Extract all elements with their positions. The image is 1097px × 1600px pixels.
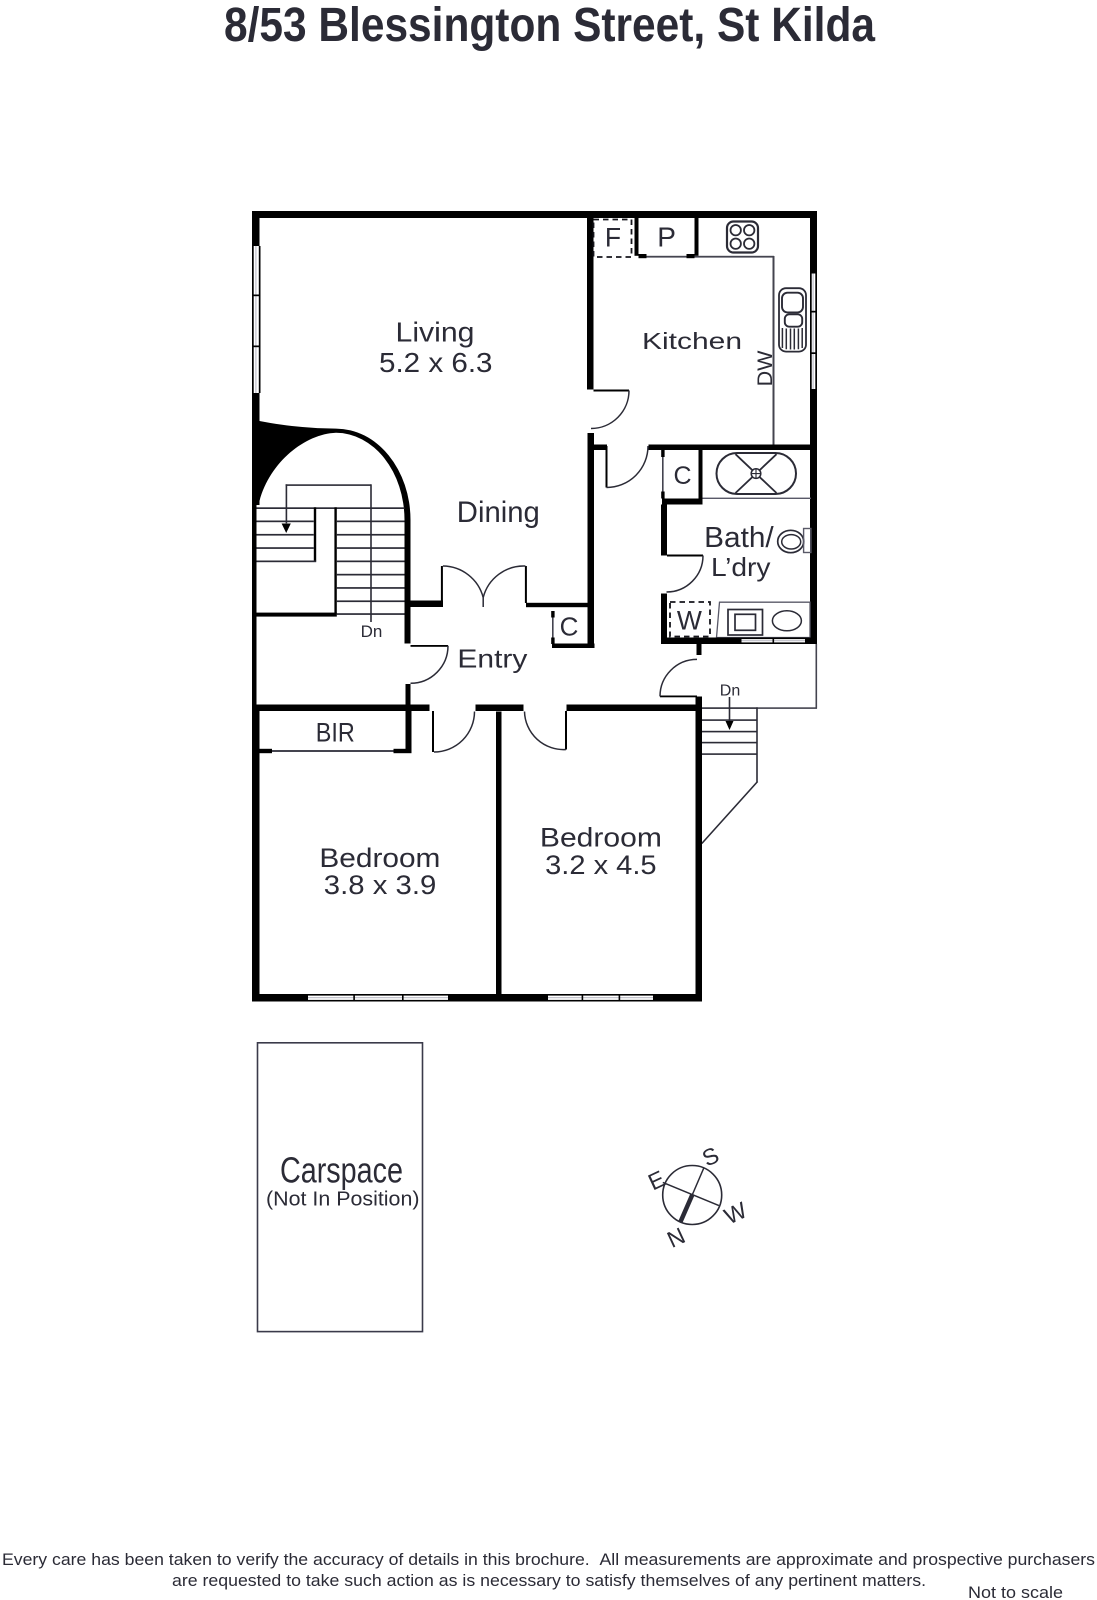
svg-text:DW: DW	[753, 350, 777, 387]
svg-text:Carspace: Carspace	[280, 1150, 403, 1191]
svg-text:BIR: BIR	[316, 717, 355, 747]
svg-text:P: P	[657, 222, 676, 253]
svg-text:L’dry: L’dry	[711, 552, 771, 582]
svg-text:Every care has been taken to v: Every care has been taken to verify the …	[2, 1551, 1095, 1569]
svg-text:Kitchen: Kitchen	[642, 328, 742, 354]
svg-text:C: C	[560, 612, 579, 642]
svg-text:C: C	[673, 462, 691, 490]
svg-text:Dn: Dn	[361, 622, 383, 641]
svg-text:3.8 x 3.9: 3.8 x 3.9	[324, 870, 437, 900]
svg-text:are requested to take such act: are requested to take such action as is …	[172, 1572, 926, 1590]
svg-text:(Not In Position): (Not In Position)	[266, 1188, 420, 1211]
svg-text:3.2 x 4.5: 3.2 x 4.5	[545, 850, 657, 880]
svg-text:F: F	[605, 223, 621, 253]
svg-text:Living: Living	[396, 317, 475, 348]
svg-text:Not to scale: Not to scale	[968, 1584, 1063, 1600]
svg-text:8/53 Blessington Street, St Ki: 8/53 Blessington Street, St Kilda	[224, 0, 875, 52]
svg-text:Bedroom: Bedroom	[319, 843, 440, 873]
svg-text:Dining: Dining	[457, 496, 540, 529]
svg-text:5.2 x 6.3: 5.2 x 6.3	[379, 347, 493, 378]
svg-text:Entry: Entry	[457, 643, 527, 673]
svg-text:W: W	[677, 605, 702, 635]
svg-text:Bedroom: Bedroom	[540, 823, 662, 853]
svg-text:Bath/: Bath/	[704, 522, 774, 554]
